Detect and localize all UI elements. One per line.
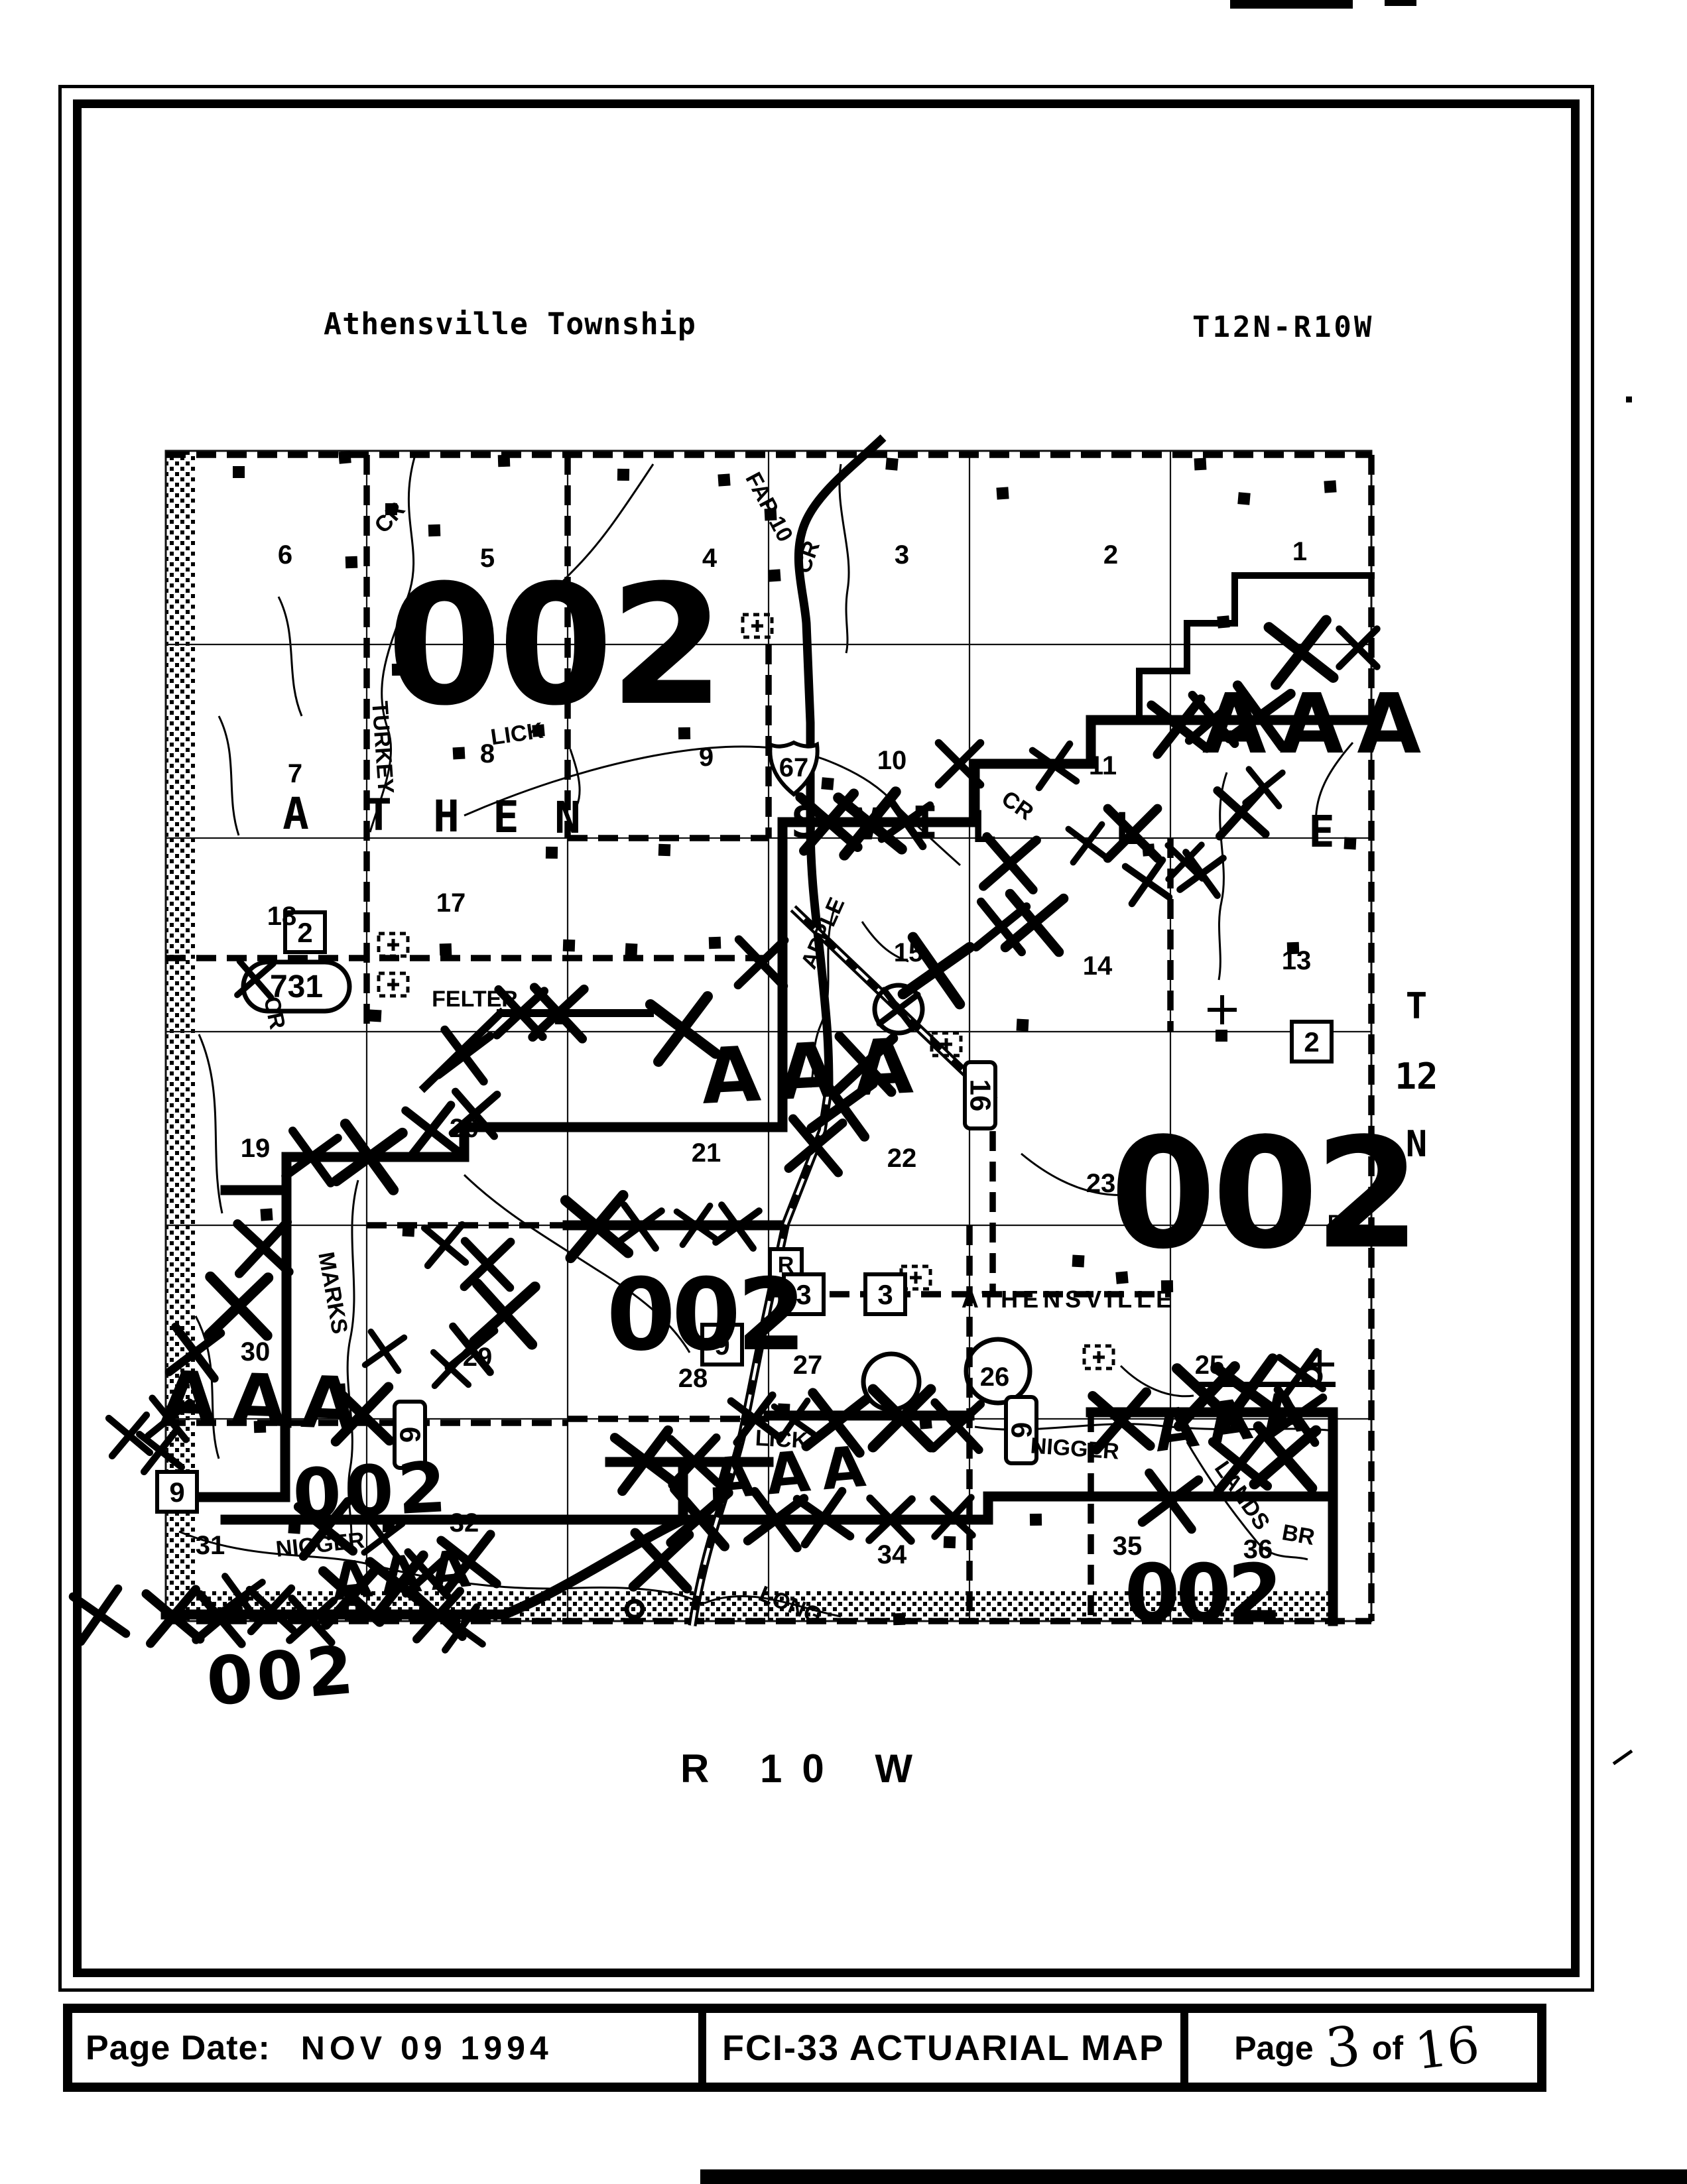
page-date-label: Page Date:: [86, 2028, 271, 2068]
plus-cross-marker: [1208, 995, 1237, 1024]
x-mark: [633, 1533, 689, 1589]
x-mark: [1151, 699, 1207, 755]
x-mark: [73, 1589, 126, 1642]
section-number: 11: [1089, 751, 1117, 780]
building-square: [1194, 458, 1207, 471]
church-marker: [379, 934, 408, 956]
township-label-right: T: [1406, 985, 1428, 1027]
x-mark: [237, 1222, 289, 1274]
creek-label: CR: [369, 497, 410, 538]
route-marker-9: 9: [157, 1472, 197, 1512]
page-total-handwritten: 16: [1412, 2019, 1482, 2077]
route-marker-16: 16: [964, 1062, 997, 1128]
building-square: [678, 727, 690, 739]
x-mark: [424, 1225, 466, 1266]
x-mark: [464, 1241, 511, 1288]
page-date-stamp: NOV 09 1994: [301, 2029, 553, 2067]
township-letter: N: [554, 792, 581, 843]
footer-page-cell: Page 3 of 16: [1180, 2013, 1537, 2083]
building-square: [765, 509, 777, 521]
zone-label-002: 002: [1125, 1548, 1279, 1640]
building-square: [1017, 1019, 1029, 1032]
building-square: [768, 569, 781, 581]
building-square: [403, 1225, 415, 1237]
section-number: 9: [699, 743, 714, 772]
building-square: [709, 937, 721, 949]
section-number: 3: [895, 540, 909, 570]
township-label-right: N: [1406, 1123, 1428, 1165]
building-square: [996, 487, 1009, 499]
x-mark: [438, 1030, 490, 1081]
x-mark: [1218, 788, 1266, 837]
creek-label: MARKS: [313, 1250, 352, 1335]
page-number-handwritten: 3: [1323, 2019, 1362, 2076]
building-square: [233, 466, 245, 478]
building-square: [1072, 1255, 1085, 1268]
actuarial-map-page: Athensville Township T12N-R10W: [0, 0, 1687, 2184]
section-number: 26: [980, 1363, 1010, 1392]
building-square: [440, 943, 452, 956]
town-name-label: ATHENSVILLE: [962, 1286, 1176, 1313]
building-square: [617, 469, 629, 481]
svg-text:67: 67: [779, 753, 809, 782]
building-square: [532, 724, 545, 737]
church-marker: [1084, 1346, 1113, 1368]
township-map: 672731216R339966 ATHENSVILLE 65432178910…: [0, 0, 1687, 2184]
x-mark: [210, 1277, 269, 1336]
section-number: 31: [196, 1531, 225, 1560]
building-square: [254, 1421, 267, 1433]
creek-label: APPLE: [796, 894, 850, 973]
route-marker-3: 3: [865, 1274, 905, 1314]
building-square: [718, 473, 730, 486]
creek-label: CR: [997, 786, 1038, 825]
building-square: [1324, 480, 1336, 493]
map-title: FCI-33 ACTUARIAL MAP: [722, 2028, 1164, 2069]
building-square: [563, 940, 576, 952]
building-square: [1344, 837, 1357, 850]
section-number: 7: [288, 759, 302, 788]
x-mark: [651, 997, 716, 1062]
township-letter: H: [433, 791, 460, 842]
church-marker: [743, 615, 772, 637]
building-square: [885, 457, 899, 471]
zone-label-002: 002: [204, 1630, 360, 1721]
svg-text:3: 3: [877, 1279, 893, 1310]
x-mark: [1093, 1392, 1150, 1449]
of-word: of: [1372, 2029, 1403, 2067]
footer-title-cell: FCI-33 ACTUARIAL MAP: [698, 2013, 1180, 2083]
footer-date-cell: Page Date: NOV 09 1994: [72, 2013, 698, 2083]
building-square: [385, 503, 397, 515]
x-mark: [1269, 621, 1334, 685]
building-square: [1217, 615, 1230, 629]
building-square: [1115, 1271, 1129, 1284]
zone-label-002: 002: [387, 549, 721, 742]
township-letter: A: [282, 788, 309, 839]
building-square: [345, 556, 358, 569]
building-square: [821, 777, 834, 790]
range-label-bottom: R 10 W: [680, 1746, 932, 1791]
section-number: 17: [436, 888, 466, 918]
svg-text:16: 16: [964, 1079, 997, 1112]
section-number: 21: [692, 1138, 721, 1168]
building-square: [546, 847, 558, 859]
building-square: [658, 844, 671, 857]
building-square: [1030, 1514, 1042, 1526]
x-mark: [1125, 860, 1169, 904]
section-number: 34: [877, 1540, 907, 1569]
church-marker: [379, 973, 408, 996]
x-mark: [1068, 824, 1107, 863]
route-marker-2: 2: [1292, 1022, 1332, 1062]
section-number: 2: [1103, 540, 1118, 570]
section-number: 22: [887, 1144, 917, 1173]
footer-table: Page Date: NOV 09 1994 FCI-33 ACTUARIAL …: [63, 2004, 1546, 2092]
section-number: 1: [1292, 537, 1307, 566]
section-number: 10: [877, 746, 907, 775]
building-square: [1237, 492, 1251, 505]
building-square: [453, 747, 466, 760]
township-letter: T: [365, 790, 392, 841]
building-square: [288, 1521, 300, 1534]
building-square: [944, 1536, 956, 1549]
township-letter: E: [493, 792, 519, 843]
page-word: Page: [1234, 2029, 1314, 2067]
building-square: [1287, 942, 1300, 955]
building-square: [369, 1010, 382, 1022]
svg-text:6: 6: [394, 1427, 426, 1443]
section-number: 32: [450, 1508, 479, 1538]
section-number: 19: [241, 1134, 271, 1163]
section-number: 18: [267, 902, 297, 931]
building-square: [1216, 1030, 1227, 1042]
creek-label: BR: [1280, 1520, 1316, 1550]
svg-text:2: 2: [297, 917, 312, 948]
section-number: 14: [1083, 951, 1113, 981]
building-square: [625, 943, 638, 956]
building-square: [428, 524, 441, 537]
zone-label-002: 002: [1110, 1106, 1416, 1283]
township-letter: E: [1308, 806, 1335, 857]
building-square: [919, 1416, 932, 1429]
building-square: [260, 1208, 273, 1221]
x-mark: [976, 902, 1027, 952]
section-number: 6: [278, 540, 292, 570]
township-label-right: 12: [1395, 1056, 1438, 1097]
building-square: [498, 455, 511, 467]
svg-text:9: 9: [169, 1477, 184, 1508]
building-square: [392, 664, 404, 676]
x-mark: [983, 837, 1036, 890]
building-square: [893, 1613, 906, 1626]
svg-text:2: 2: [1304, 1026, 1319, 1058]
building-square: [338, 451, 351, 464]
zone-label-002: 002: [606, 1258, 802, 1373]
x-mark: [933, 1402, 980, 1449]
